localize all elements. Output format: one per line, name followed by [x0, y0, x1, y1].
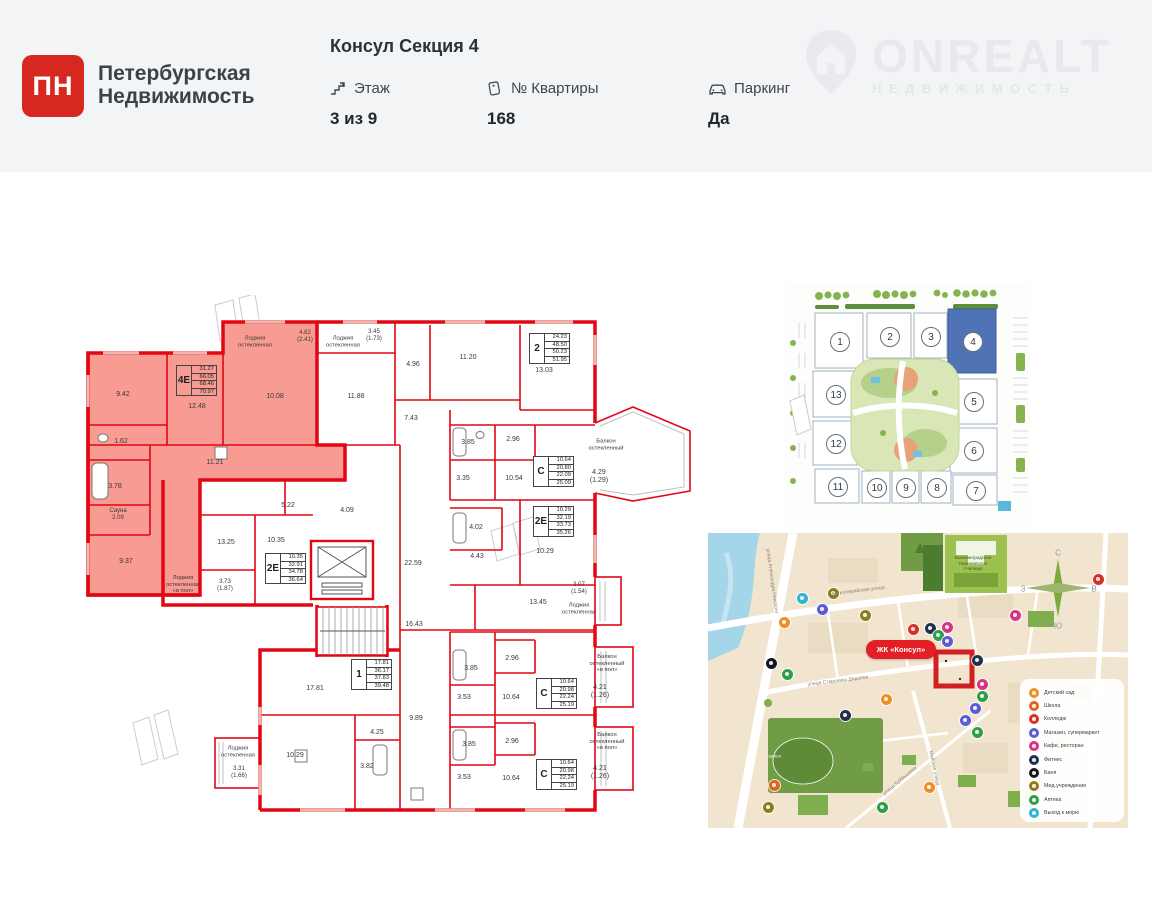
room-label: 4.96: [406, 361, 420, 369]
stat-parking-label: Паркинг: [734, 80, 790, 97]
room-label: 10.54: [505, 475, 523, 483]
legend-dot-icon: [1029, 728, 1039, 738]
room-label: 4.21 (1.26): [591, 684, 609, 700]
room-label: 5.22: [281, 502, 295, 510]
stat-apartments-value: 168: [487, 109, 599, 129]
legend-item: Баня: [1029, 766, 1124, 779]
brand: ПН Петербургская Недвижимость: [22, 55, 254, 117]
room-label: 3.35: [456, 475, 470, 483]
poi-marker[interactable]: [860, 610, 871, 621]
legend-item: Фитнес: [1029, 753, 1124, 766]
legend-item: Магазин, супермаркет: [1029, 726, 1124, 739]
poi-marker[interactable]: [972, 655, 983, 666]
poi-marker[interactable]: [1010, 610, 1021, 621]
room-label: Лоджия остекленная: [238, 335, 272, 348]
apartment-spec-table: 2Е10.3532.9134.7836.64: [265, 553, 306, 584]
apartment-type: С: [537, 760, 552, 789]
stat-parking: Паркинг Да: [708, 80, 790, 129]
poi-marker[interactable]: [942, 636, 953, 647]
map-legend: Детский садШколаКолледжМагазин, супермар…: [1020, 679, 1124, 822]
street-label: Артиллерийская улица: [831, 585, 885, 597]
apartment-type: 2Е: [266, 554, 281, 583]
legend-label: Мед.учреждение: [1044, 783, 1086, 789]
legend-label: Детский сад: [1044, 690, 1074, 696]
apartment-type: 4Е: [177, 366, 192, 395]
room-label: 12.48: [188, 403, 206, 411]
poi-marker[interactable]: [881, 694, 892, 705]
room-label: 10.64: [502, 694, 520, 702]
poi-marker[interactable]: [763, 802, 774, 813]
poi-marker[interactable]: [877, 802, 888, 813]
section-number[interactable]: 1: [830, 332, 850, 352]
room-label: 13.45: [529, 599, 547, 607]
poi-marker[interactable]: [970, 703, 981, 714]
section-number[interactable]: 9: [896, 478, 916, 498]
legend-item: Мед.учреждение: [1029, 780, 1124, 793]
legend-item: Колледж: [1029, 713, 1124, 726]
room-label: 7.43: [404, 415, 418, 423]
floorplan-image: 9.4212.4810.0811.211.623.78Сауна 2.099.3…: [55, 295, 700, 850]
legend-item: Школа: [1029, 699, 1124, 712]
room-label: 11.88: [348, 393, 365, 401]
legend-item: Аптека: [1029, 793, 1124, 806]
room-label: 11.21: [207, 459, 224, 467]
poi-marker[interactable]: [977, 691, 988, 702]
stat-apartments: № Квартиры 168: [487, 80, 599, 129]
apartment-areas: 31.2766.0568.4670.97: [192, 366, 216, 395]
apartment-spec-table: С10.6420.9822.2425.19: [536, 678, 577, 709]
room-label: Лоджия остекленная: [221, 745, 255, 758]
watermark-text: ONREALT: [872, 33, 1112, 79]
legend-label: Кафе, ресторан: [1044, 743, 1084, 749]
poi-marker[interactable]: [960, 715, 971, 726]
poi-marker[interactable]: [817, 604, 828, 615]
section-number-highlighted[interactable]: 4: [963, 332, 983, 352]
onrealt-pin-icon: [800, 26, 862, 103]
stat-floor-label: Этаж: [354, 80, 390, 97]
room-label: 10.29: [286, 752, 304, 760]
room-label: Балкон остекленный «в пол»: [590, 654, 625, 674]
stat-apartments-label: № Квартиры: [511, 80, 599, 97]
room-label: 3.53: [457, 694, 471, 702]
poi-marker[interactable]: [782, 669, 793, 680]
apartment-areas: 10.2932.1933.7335.26: [549, 507, 573, 536]
section-number[interactable]: 13: [826, 385, 846, 405]
room-label: Лоджия остекленная: [326, 335, 360, 348]
car-icon: [708, 82, 727, 96]
section-number[interactable]: 12: [826, 434, 846, 454]
location-map[interactable]: ЖК «Консул» Детский садШколаКолледжМагаз…: [708, 533, 1128, 828]
apartment-areas: 10.3532.9134.7836.64: [281, 554, 305, 583]
legend-dot-icon: [1029, 741, 1039, 751]
room-label: 2.96: [505, 738, 519, 746]
section-number[interactable]: 5: [964, 392, 984, 412]
compass-letter: З: [1021, 585, 1026, 594]
room-label: 2.96: [505, 655, 519, 663]
room-label: 4.21 (1.26): [591, 765, 609, 781]
room-label: 4.29 (1.29): [590, 469, 608, 485]
room-label: 4.82 (2.41): [297, 330, 313, 344]
room-label: 9.42: [116, 391, 130, 399]
room-label: 17.81: [306, 685, 324, 693]
apartment-type: С: [537, 679, 552, 708]
apartment-spec-table: С10.6420.8022.0925.09: [533, 456, 574, 487]
compass-letter: В: [1091, 585, 1096, 594]
section-number[interactable]: 6: [964, 441, 984, 461]
legend-label: Баня: [1044, 770, 1056, 776]
project-label[interactable]: ЖК «Консул»: [866, 640, 936, 659]
room-label: 10.08: [266, 393, 284, 401]
apartment-type: 2Е: [534, 507, 549, 536]
legend-label: Аптека: [1044, 797, 1061, 803]
apartment-areas: 10.6420.8022.0925.09: [549, 457, 573, 486]
room-label: 3.85: [461, 439, 475, 447]
brand-name: Петербургская Недвижимость: [98, 63, 254, 108]
room-label: 13.25: [217, 539, 235, 547]
room-label: 4.25: [370, 729, 384, 737]
legend-item: Кафе, ресторан: [1029, 740, 1124, 753]
poi-marker[interactable]: [797, 593, 808, 604]
room-label: 3.07 (1.54): [571, 582, 587, 596]
room-label: 9.37: [119, 558, 133, 566]
room-label: 3.85: [464, 665, 478, 673]
street-label: улица Александра Невского: [764, 548, 779, 614]
room-label: 3.78: [108, 483, 122, 491]
room-label: Лоджия остекленная «в пол»: [166, 575, 200, 595]
room-label: 11.20: [460, 354, 477, 362]
page-title: Консул Секция 4: [330, 36, 479, 57]
compass-letter: С: [1055, 549, 1061, 558]
apartment-type: 1: [352, 660, 367, 689]
siteplan-image: 12345678910111213: [785, 283, 1030, 528]
legend-dot-icon: [1029, 808, 1039, 818]
room-label: 3.85: [462, 741, 476, 749]
stat-floor-value: 3 из 9: [330, 109, 390, 129]
room-label: 4.43: [470, 553, 484, 561]
apartment-areas: 10.6420.9822.2425.19: [552, 679, 576, 708]
poi-marker[interactable]: [924, 782, 935, 793]
room-label: 3.73 (1.87): [217, 579, 233, 593]
poi-marker[interactable]: [1093, 574, 1104, 585]
poi-marker[interactable]: [840, 710, 851, 721]
tag-icon: [487, 81, 504, 97]
poi-marker[interactable]: [779, 617, 790, 628]
apartment-spec-table: 2Е10.2932.1933.7335.26: [533, 506, 574, 537]
legend-dot-icon: [1029, 768, 1039, 778]
room-label: 10.64: [502, 775, 520, 783]
room-label: 22.59: [404, 560, 422, 568]
legend-dot-icon: [1029, 781, 1039, 791]
brand-name-line1: Петербургская: [98, 63, 254, 86]
room-label: 4.09: [340, 507, 354, 515]
apartment-areas: 17.8136.1737.8339.48: [367, 660, 391, 689]
onrealt-watermark: ONREALT НЕДВИЖИМОСТЬ: [800, 26, 1112, 103]
apartment-areas: 24.2348.5050.2351.95: [545, 334, 569, 363]
room-label: 9.89: [409, 715, 423, 723]
listing-page: ПН Петербургская Недвижимость Консул Сек…: [0, 0, 1152, 910]
apartment-type: С: [534, 457, 549, 486]
section-number[interactable]: 8: [927, 478, 947, 498]
section-number[interactable]: 11: [828, 477, 848, 497]
street-label: Майская улица: [927, 750, 940, 786]
section-number[interactable]: 10: [867, 478, 887, 498]
watermark-subtext: НЕДВИЖИМОСТЬ: [872, 81, 1076, 96]
legend-dot-icon: [1029, 688, 1039, 698]
siteplan-sections: 12345678910111213: [785, 283, 1030, 528]
stat-floor: Этаж 3 из 9: [330, 80, 390, 129]
stat-parking-value: Да: [708, 109, 790, 129]
room-label: 13.03: [535, 367, 553, 375]
room-label: 3.31 (1.66): [231, 766, 247, 780]
brand-name-line2: Недвижимость: [98, 86, 254, 109]
brand-logo: ПН: [22, 55, 84, 117]
apartment-spec-table: 4Е31.2766.0568.4670.97: [176, 365, 217, 396]
apartment-spec-table: С10.6420.9822.2425.19: [536, 759, 577, 790]
room-label: 1.62: [114, 438, 128, 446]
landmark-label: Калининградское Нахимовское Училище: [954, 555, 991, 572]
brand-logo-text: ПН: [33, 71, 74, 102]
poi-marker[interactable]: [977, 679, 988, 690]
room-label: Балкон остекленный «в пол»: [590, 732, 625, 752]
apartment-spec-table: 117.8136.1737.8339.48: [351, 659, 392, 690]
room-label: Сауна 2.09: [109, 508, 126, 522]
poi-marker[interactable]: [769, 780, 780, 791]
apartment-spec-table: 224.2348.5050.2351.95: [529, 333, 570, 364]
legend-item: Выход к морю: [1029, 807, 1124, 820]
poi-marker[interactable]: [942, 622, 953, 633]
legend-dot-icon: [1029, 714, 1039, 724]
room-label: 3.45 (1.73): [366, 329, 382, 343]
street-label: улица Куйбышева: [882, 765, 918, 797]
apartment-type: 2: [530, 334, 545, 363]
section-number[interactable]: 3: [921, 327, 941, 347]
stairs-icon: [330, 81, 347, 96]
room-label: 2.96: [506, 436, 520, 444]
legend-item: Детский сад: [1029, 686, 1124, 699]
room-label: 10.29: [536, 548, 554, 556]
apartment-areas: 10.6420.9822.2425.19: [552, 760, 576, 789]
map-overlay: ЖК «Консул» Детский садШколаКолледжМагаз…: [708, 533, 1128, 828]
poi-marker[interactable]: [766, 658, 777, 669]
compass-letter: Ю: [1054, 622, 1062, 631]
legend-label: Выход к морю: [1044, 810, 1079, 816]
legend-label: Магазин, супермаркет: [1044, 730, 1100, 736]
legend-dot-icon: [1029, 795, 1039, 805]
legend-dot-icon: [1029, 755, 1039, 765]
room-label: 16.43: [405, 621, 423, 629]
section-number[interactable]: 7: [966, 481, 986, 501]
section-number[interactable]: 2: [880, 327, 900, 347]
room-label: 4.02: [469, 524, 483, 532]
legend-label: Школа: [1044, 703, 1060, 709]
room-label: 3.82: [360, 763, 374, 771]
room-label: 3.53: [457, 774, 471, 782]
floorplan-labels: 9.4212.4810.0811.211.623.78Сауна 2.099.3…: [55, 295, 700, 850]
poi-marker[interactable]: [908, 624, 919, 635]
poi-marker[interactable]: [972, 727, 983, 738]
legend-label: Фитнес: [1044, 757, 1062, 763]
legend-dot-icon: [1029, 701, 1039, 711]
legend-label: Колледж: [1044, 716, 1066, 722]
street-label: улица Старшины Дадаева: [807, 674, 868, 687]
room-label: 10.35: [267, 537, 285, 545]
landmark-label: Стадион: [763, 753, 781, 759]
room-label: Балкон остекленный: [589, 438, 624, 451]
room-label: Лоджия остекленная: [562, 602, 596, 615]
header: ПН Петербургская Недвижимость Консул Сек…: [0, 0, 1152, 172]
